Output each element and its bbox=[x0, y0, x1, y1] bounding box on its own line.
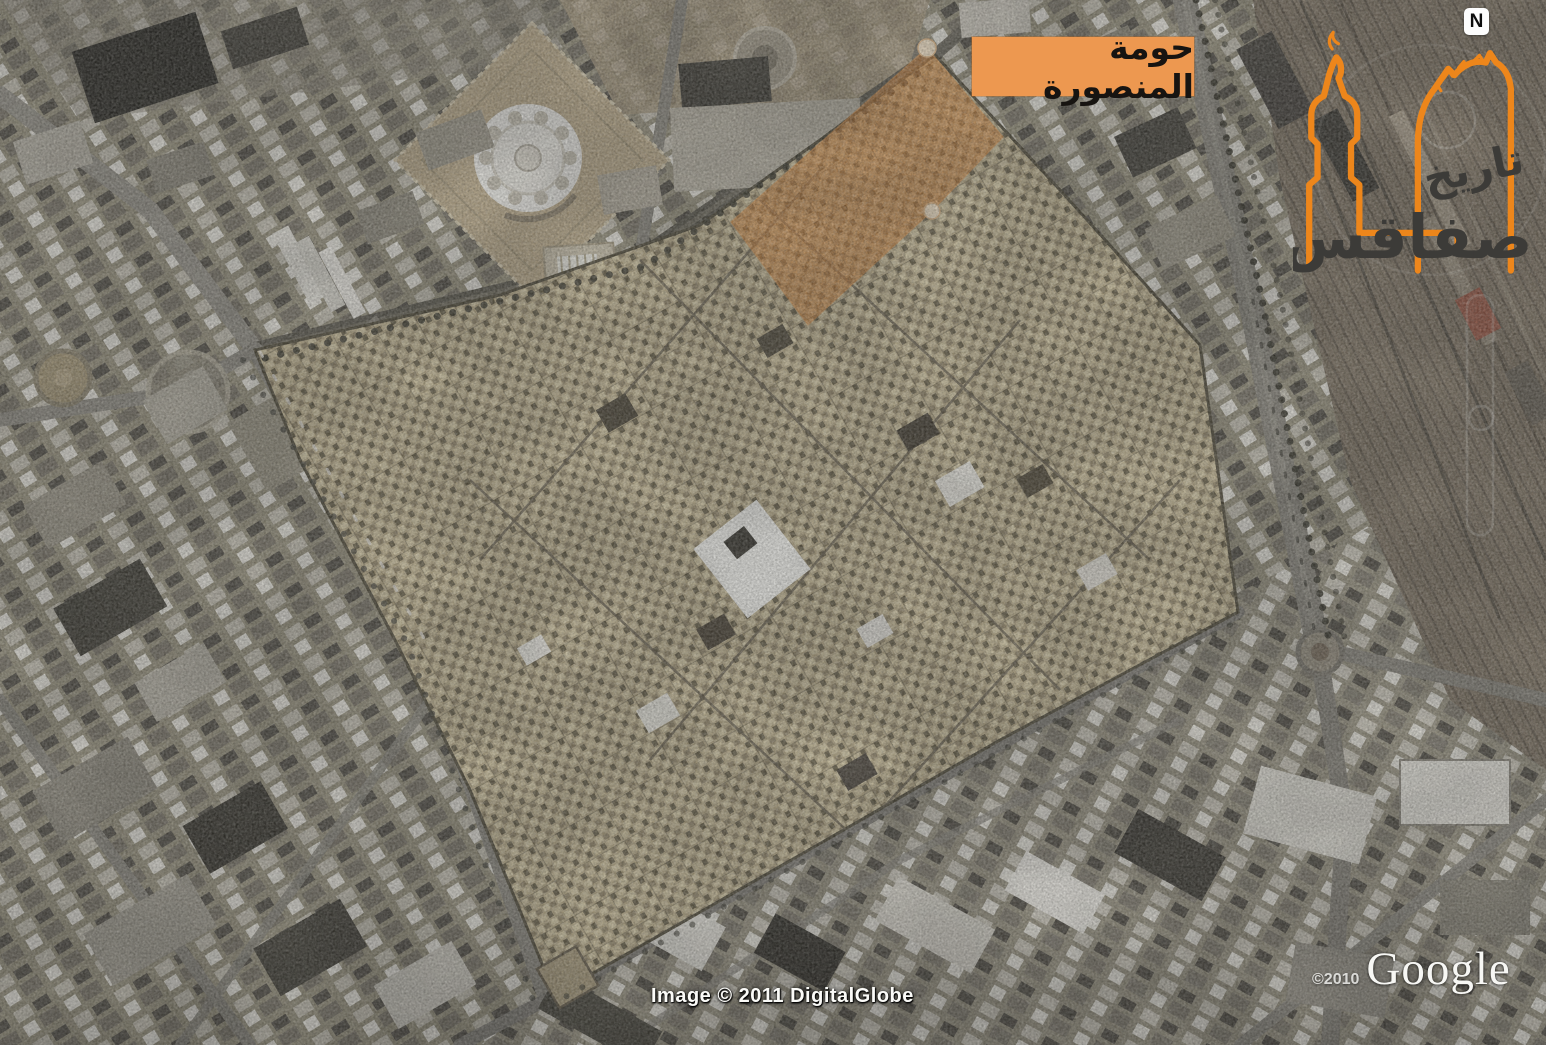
imagery-attribution: Image © 2011 DigitalGlobe bbox=[651, 985, 914, 1008]
district-label-text: حومة المنصورة bbox=[972, 28, 1194, 106]
satellite-map[interactable]: حومة المنصورة N تاريخ صفاقس Image © 2011… bbox=[0, 0, 1546, 1045]
sfax-history-logo: تاريخ صفاقس bbox=[1293, 26, 1546, 282]
copyright-year: ©2010 bbox=[1312, 971, 1359, 989]
google-watermark: ©2010 Google bbox=[1312, 946, 1511, 993]
google-logo: Google bbox=[1366, 946, 1510, 993]
imagery-attribution-text: Image © 2011 DigitalGlobe bbox=[651, 985, 914, 1007]
logo-text-bottom: صفاقس bbox=[1293, 203, 1533, 273]
district-label: حومة المنصورة bbox=[972, 37, 1194, 96]
sfax-history-logo-art: تاريخ صفاقس bbox=[1293, 26, 1546, 282]
